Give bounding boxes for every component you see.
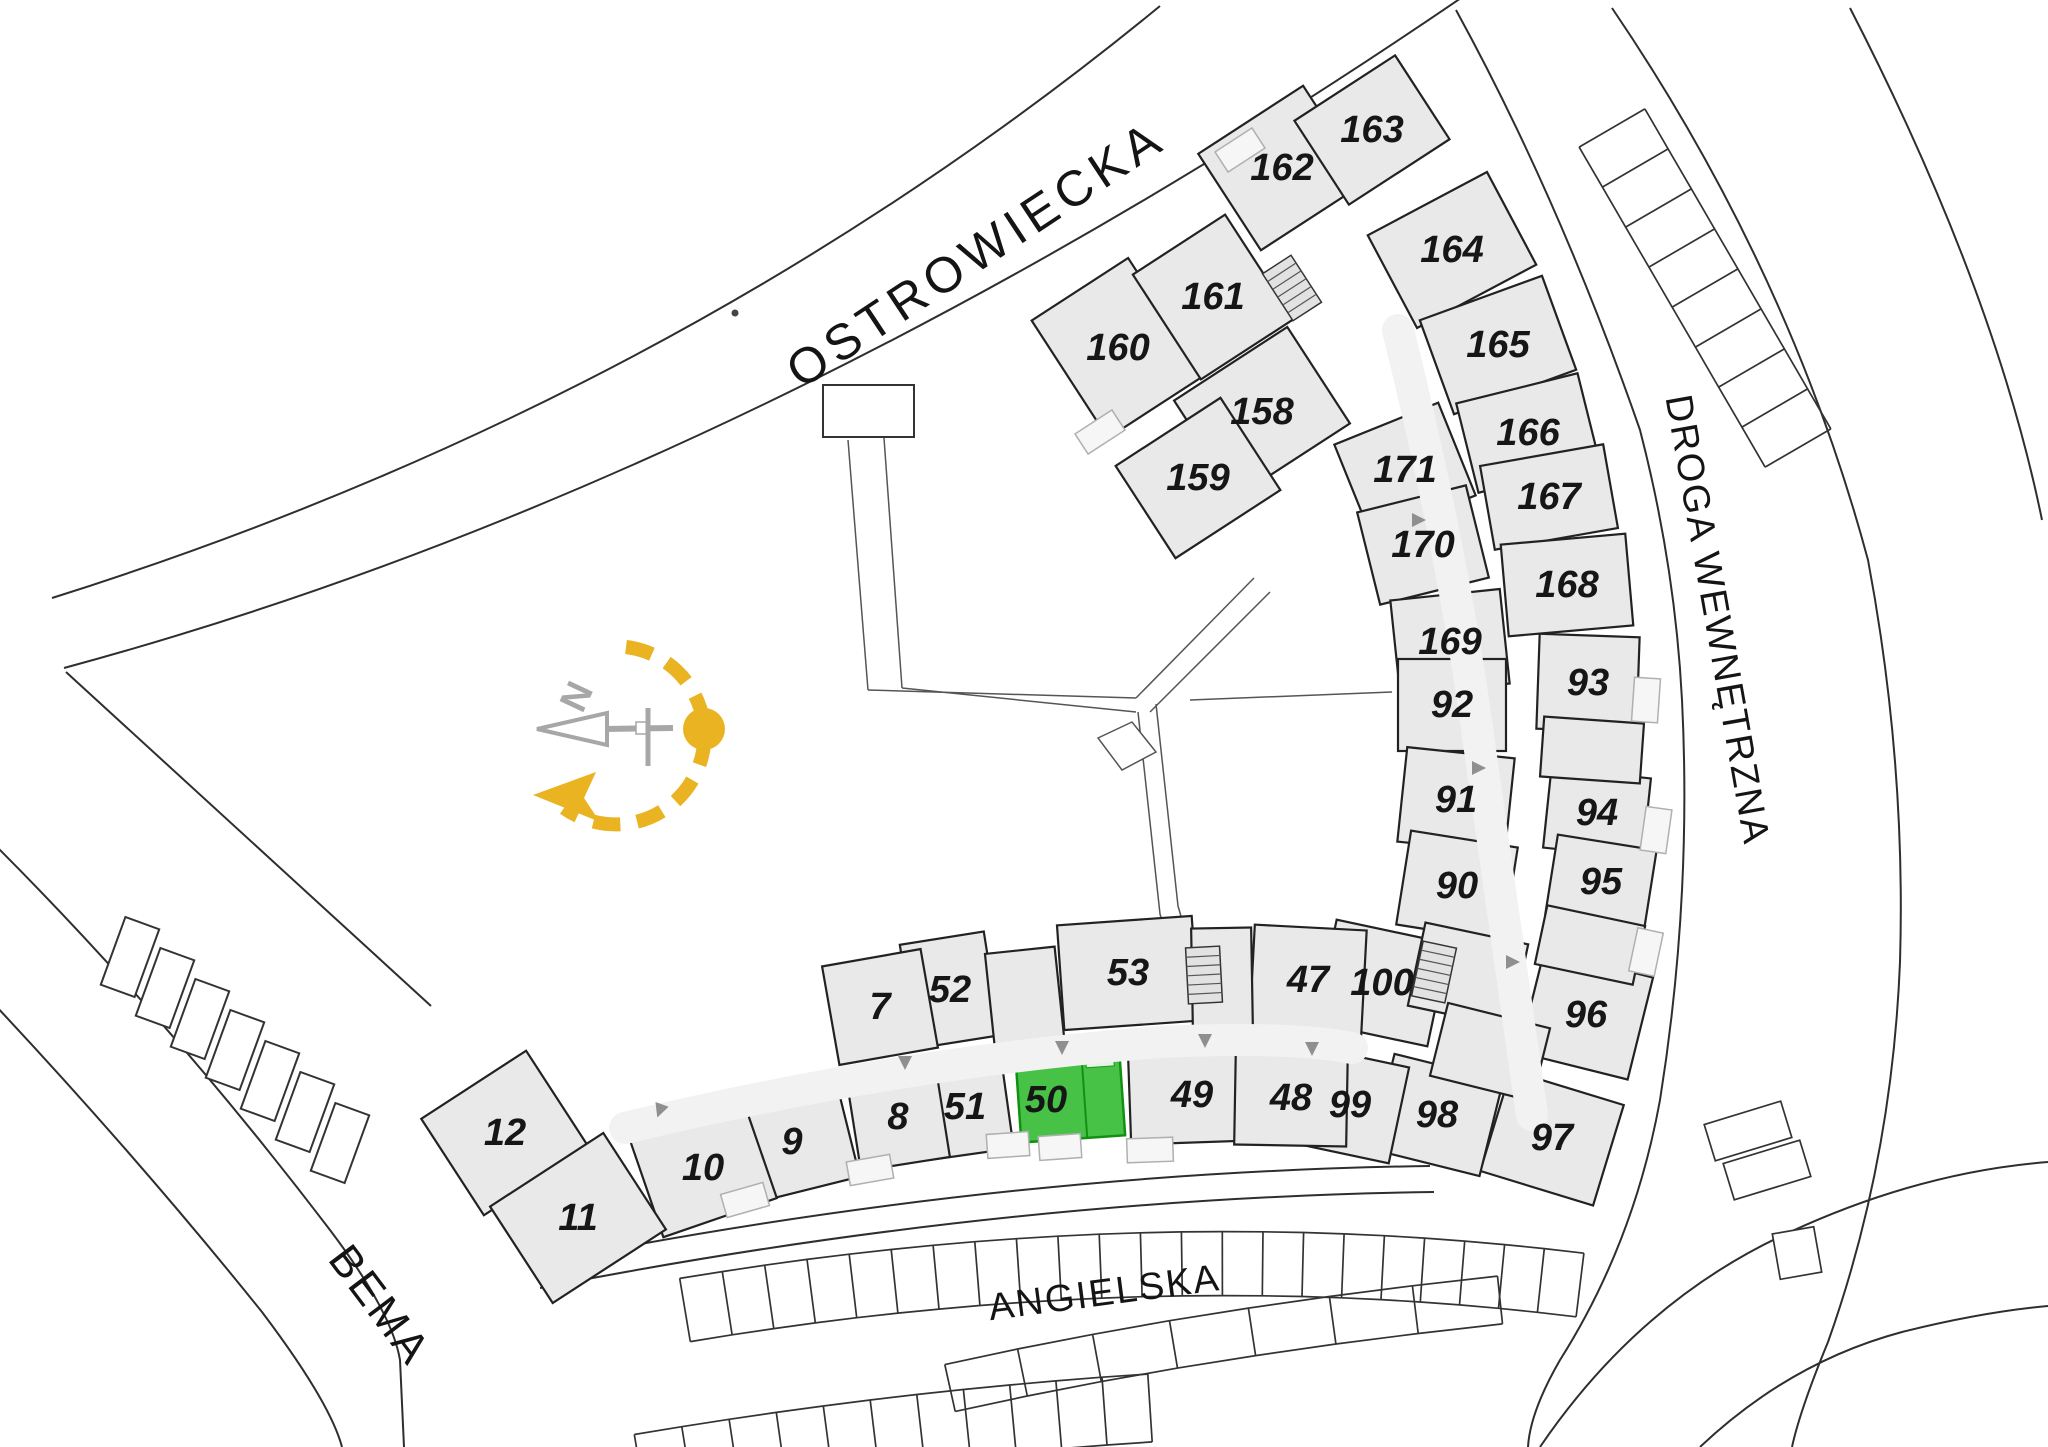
footpath-2 bbox=[868, 690, 1136, 698]
unit-label-47: 47 bbox=[1286, 959, 1331, 1001]
unit-label-163: 163 bbox=[1340, 109, 1403, 151]
unit-label-160: 160 bbox=[1086, 327, 1149, 369]
unit-label-171: 171 bbox=[1373, 449, 1436, 491]
unit-label-100: 100 bbox=[1350, 962, 1413, 1004]
unit-label-94: 94 bbox=[1576, 792, 1618, 834]
unit-label-11: 11 bbox=[558, 1197, 597, 1239]
unit-label-8: 8 bbox=[887, 1096, 909, 1138]
roadside-pad bbox=[1772, 1227, 1821, 1280]
unit-label-12: 12 bbox=[484, 1112, 526, 1154]
compass-dot bbox=[683, 708, 725, 750]
unit-label-167: 167 bbox=[1517, 476, 1582, 518]
unit-label-91: 91 bbox=[1435, 779, 1477, 821]
unit-label-51: 51 bbox=[944, 1086, 986, 1128]
site-marker-dot bbox=[732, 310, 739, 317]
unit-label-158: 158 bbox=[1230, 391, 1294, 433]
site-plan: 1601611621631581591641651661671681711701… bbox=[0, 0, 2048, 1447]
site-line-6 bbox=[1540, 1162, 2048, 1447]
unit-label-159: 159 bbox=[1166, 457, 1229, 499]
unit-label-168: 168 bbox=[1535, 564, 1599, 606]
unit-label-48: 48 bbox=[1269, 1077, 1313, 1119]
compass-north-label: N bbox=[552, 676, 602, 719]
unit-label-164: 164 bbox=[1420, 229, 1483, 271]
balcony bbox=[1640, 806, 1672, 853]
unit-label-165: 165 bbox=[1466, 324, 1530, 366]
unit-label-99: 99 bbox=[1329, 1084, 1371, 1126]
footpath-8 bbox=[1190, 692, 1392, 700]
utility-enclosure bbox=[823, 385, 914, 437]
unit-label-49: 49 bbox=[1170, 1074, 1213, 1116]
footpath-5 bbox=[1150, 592, 1270, 712]
unit-label-7: 7 bbox=[869, 986, 892, 1028]
compass bbox=[533, 647, 725, 824]
unit-label-9: 9 bbox=[781, 1121, 802, 1163]
balcony bbox=[986, 1132, 1030, 1159]
unit-label-96: 96 bbox=[1565, 994, 1608, 1036]
balcony bbox=[1127, 1137, 1174, 1163]
footpath-0 bbox=[848, 440, 868, 690]
unit-label-95: 95 bbox=[1580, 861, 1623, 903]
building-block bbox=[1540, 717, 1644, 784]
footpath-junction-pad bbox=[1098, 722, 1156, 770]
site-line-5 bbox=[1850, 8, 2042, 520]
unit-label-161: 161 bbox=[1181, 276, 1244, 318]
north-needle-icon bbox=[537, 713, 607, 745]
unit-label-169: 169 bbox=[1418, 621, 1481, 663]
parking-row-droga bbox=[1579, 109, 1831, 467]
unit-label-90: 90 bbox=[1436, 865, 1478, 907]
unit-label-162: 162 bbox=[1250, 147, 1313, 189]
site-line-0 bbox=[52, 6, 1160, 598]
unit-label-93: 93 bbox=[1567, 662, 1609, 704]
unit-label-53: 53 bbox=[1107, 952, 1149, 994]
footpath-3 bbox=[902, 688, 1136, 712]
parking-row-bottom-edge bbox=[634, 1374, 1152, 1447]
unit-label-52: 52 bbox=[929, 969, 971, 1011]
unit-label-170: 170 bbox=[1391, 524, 1454, 566]
balcony bbox=[1038, 1134, 1082, 1161]
unit-label-98: 98 bbox=[1416, 1094, 1459, 1136]
footpath-1 bbox=[884, 438, 902, 688]
unit-label-97: 97 bbox=[1531, 1117, 1575, 1159]
unit-label-10: 10 bbox=[682, 1147, 724, 1189]
footpath-4 bbox=[1136, 578, 1254, 698]
unit-label-92: 92 bbox=[1431, 684, 1473, 726]
street-label-bema: BEMA bbox=[319, 1236, 440, 1375]
balcony bbox=[1631, 677, 1660, 723]
site-line-7 bbox=[1700, 1306, 2048, 1447]
unit-label-50: 50 bbox=[1025, 1079, 1067, 1121]
unit-label-166: 166 bbox=[1496, 412, 1560, 454]
stair-core bbox=[1186, 946, 1223, 1004]
